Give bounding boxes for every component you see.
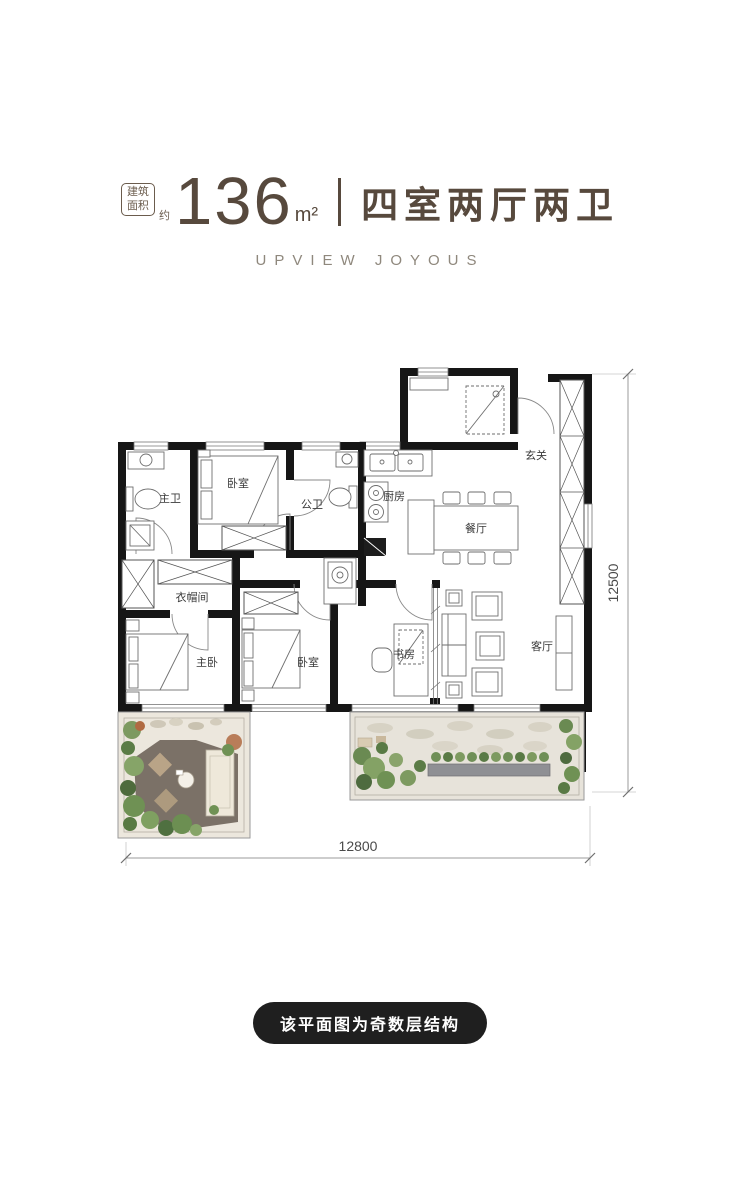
room-label-cloakroom: 衣帽间 bbox=[176, 590, 209, 604]
bedroom-2-furniture bbox=[242, 618, 300, 701]
floor-note-badge: 该平面图为奇数层结构 bbox=[253, 1002, 487, 1044]
dimension-height-label: 12500 bbox=[605, 563, 621, 602]
room-label-study: 书房 bbox=[393, 648, 415, 661]
room-label-master-bath: 主卫 bbox=[159, 492, 181, 505]
dimension-width-label: 12800 bbox=[339, 838, 378, 854]
room-label-living: 客厅 bbox=[531, 639, 553, 653]
room-label-foyer: 玄关 bbox=[525, 448, 547, 462]
utility-annex bbox=[410, 378, 504, 434]
room-label-public-bath: 公卫 bbox=[301, 499, 323, 511]
garden-terrace-left bbox=[118, 712, 250, 838]
master-bedroom-furniture bbox=[126, 620, 188, 703]
room-label-bedroom-2: 卧室 bbox=[297, 655, 319, 669]
room-label-bedroom-top: 卧室 bbox=[227, 476, 249, 490]
kitchen-fixtures bbox=[364, 450, 434, 556]
terrace-right bbox=[350, 712, 584, 800]
room-label-dining: 餐厅 bbox=[465, 521, 487, 535]
room-label-master-bedroom: 主卧 bbox=[196, 656, 218, 669]
public-bath-fixtures bbox=[324, 452, 358, 604]
room-label-kitchen: 厨房 bbox=[383, 490, 405, 503]
